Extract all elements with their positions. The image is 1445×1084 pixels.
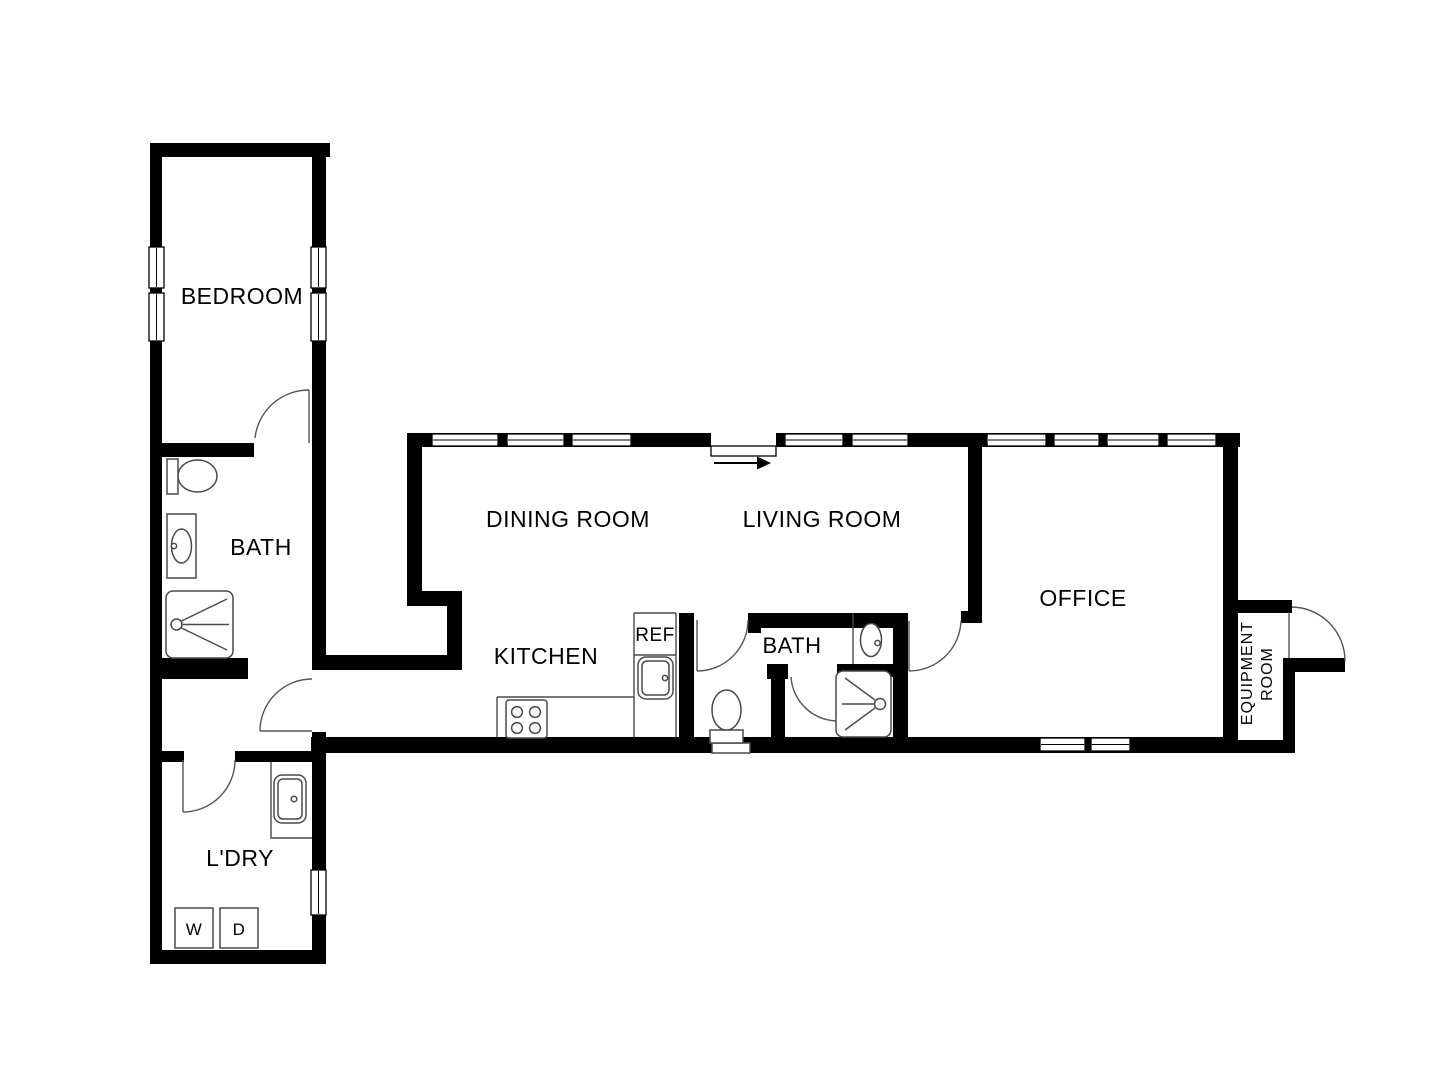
floor-plan: W D REF — [0, 0, 1445, 1084]
refrigerator-label: REF — [635, 625, 675, 646]
room-label-living: LIVING ROOM — [743, 506, 902, 532]
bath-center-door — [697, 620, 748, 671]
hallway-door — [260, 679, 312, 731]
room-label-kitchen: KITCHEN — [494, 643, 598, 669]
bedroom-door — [255, 390, 309, 443]
wall-segment — [162, 443, 254, 457]
office-door — [909, 621, 961, 671]
wall-segment — [312, 732, 326, 953]
laundry-sink-icon — [274, 775, 306, 823]
wall-segment — [312, 143, 326, 670]
floor-plan-canvas: W D REF — [0, 0, 1445, 1084]
wall-segment — [1223, 433, 1238, 753]
wall-segment — [150, 143, 330, 157]
wall-segment — [447, 591, 462, 657]
wall-segment — [1238, 600, 1292, 613]
stove-icon — [506, 700, 547, 738]
wall-segment — [748, 613, 908, 628]
room-label-bedroom: BEDROOM — [181, 283, 303, 309]
wall-segment — [893, 613, 908, 753]
room-label-bath-center: BATH — [762, 633, 821, 658]
wall-segment — [324, 655, 462, 670]
toilet-icon — [167, 459, 217, 494]
wall-segment — [679, 613, 694, 753]
room-label-dining: DINING ROOM — [486, 506, 650, 532]
room-label-office: OFFICE — [1039, 585, 1126, 611]
washer-box: W — [175, 908, 213, 948]
walls — [150, 143, 1345, 964]
kitchen-sink-icon — [638, 657, 673, 699]
washer-label: W — [186, 920, 203, 939]
room-label-bath-left: BATH — [230, 534, 292, 560]
room-label-equipment-line1: EQUIPMENT — [1239, 621, 1256, 725]
dryer-label: D — [233, 920, 246, 939]
wall-segment — [748, 613, 761, 633]
entry-door-sill — [711, 446, 776, 456]
wall-segment — [1238, 740, 1295, 753]
shower-compartment-door — [791, 677, 838, 721]
refrigerator-box: REF — [635, 625, 675, 646]
wall-segment — [235, 751, 312, 762]
entry-arrow-icon — [714, 457, 771, 470]
wall-segment — [771, 664, 785, 740]
laundry-door — [183, 760, 235, 812]
wall-segment — [968, 433, 982, 623]
vanity-sink-icon — [167, 514, 196, 578]
wall-segment — [150, 658, 248, 679]
shower-icon — [166, 591, 233, 658]
room-label-laundry: L'DRY — [206, 845, 274, 871]
wall-segment — [961, 611, 982, 623]
wall-segment — [1283, 658, 1345, 672]
room-labels: BEDROOM BATH L'DRY DINING ROOM LIVING RO… — [181, 283, 1276, 871]
room-label-equipment-line2: ROOM — [1259, 647, 1276, 701]
toilet-icon — [710, 690, 750, 753]
wall-segment — [407, 433, 422, 606]
wall-segment — [162, 751, 184, 762]
windows — [149, 247, 1216, 915]
equipment-room-door — [1289, 607, 1345, 661]
shower-icon — [836, 671, 891, 737]
dryer-box: D — [220, 908, 258, 948]
wall-segment — [150, 950, 326, 964]
